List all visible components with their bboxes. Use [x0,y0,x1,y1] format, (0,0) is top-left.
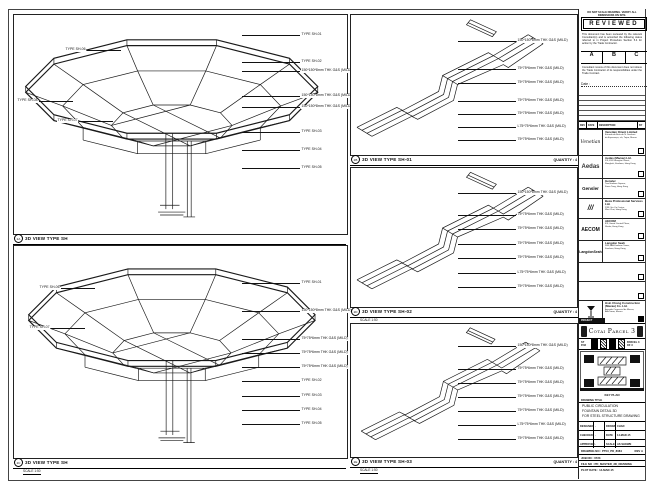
view-title-top-left: 2A 3D VIEW TYPE SH [13,234,346,245]
consultant-address: Mongkok, Kowloon, Hong Kong [605,163,643,166]
leader-label: TYPE SH-05 [301,166,322,170]
revision-row [579,95,645,96]
leader-label: TYPE SH-07 [57,119,78,123]
view-scale-text: SCALE 1:50 [360,468,378,474]
consultant-address: Shatin, Hong Kong [605,226,643,229]
checkbox-icon [638,293,644,299]
leader-label: 150*150*8mm THK G&S (MILD) [517,344,568,348]
revision-table-header: REV DATE DESCRIPTION BY [579,121,645,129]
leader-label: 150*150*8mm THK G&S (MILD) [301,309,352,313]
leader-label: 75*75*6mm THK G&S (MILD) [517,256,564,260]
plot-date-row: PLOT DATE : 14-MAR-15 [579,466,645,472]
revision-row [579,100,645,101]
consultant-name: Beca Professional Services Ltd. [605,200,643,207]
leader-label: 75*75*6mm THK G&S (MILD) [517,138,564,142]
plot-date-value: PLOT DATE : 14-MAR-15 [581,468,614,472]
checkbox-icon [638,191,644,197]
consultant-row-langdon-seah: LangdonSeah Langdon Seah38/F, AIA Kowloo… [579,240,645,262]
stamp-status-table: A B C [581,51,647,64]
leader-label: TYPE SH-04 [301,408,322,412]
stamp-date-line: Date : [581,82,647,87]
view-title-text: 3D VIEW TYPE SH [25,236,68,241]
status-cell-b: B [603,52,625,63]
checkbox-icon [638,171,644,177]
drawing-number-value: PT03_PD_8084 [602,449,622,453]
consultant-address: Kowloon, Hong Kong [605,248,643,251]
leader-label: 150*150*8mm THK G&S (MILD) [517,39,568,43]
leader-label: 75*75*6mm THK G&S (MILD) [301,351,348,355]
wireframe-drawing-top-left [14,15,345,232]
keyplan-strip-label: ST P.03 [581,341,589,347]
signoff-label: DESIGNED [579,422,594,430]
leader-label: 150*150*8mm THK G&S (MILD) [301,69,352,73]
consultant-row-empty-1 [579,262,645,281]
signoff-value: - [594,422,605,430]
project-banner: Cotai Parcel 3 [579,323,645,339]
signoff-label: DRAWN [605,422,616,430]
consultant-row-aecom: AECOM AECOM8/F, Grand Central Plaza,Shat… [579,218,645,240]
file-number-value: FILE NO : PD_MASTER_3D_DRAWING [581,462,632,466]
view-title-mid-1: 2B 3D VIEW TYPE SH-01 QUANTITY : 4 [350,155,578,166]
project-tag-bar: PROJECT [579,318,605,323]
leader-label: 75*75*6mm THK G&S (MILD) [517,409,564,413]
drawing-title-line: FOR STEEL STRUCTURE DRAWING [579,414,645,419]
leader-label: 150*150*8mm THK G&S (MILD) [517,191,568,195]
leader-label: 75*75*6mm THK G&S (MILD) [517,437,564,441]
reviewed-stamp: REVIEWED [581,17,647,31]
drawing-title-label: DRAWING TITLE [579,399,645,403]
view-quantity-text: QUANTITY : 4 [554,158,578,162]
aecom-logo: AECOM [579,219,603,240]
leader-label: 75*75*6mm THK G&S (MILD) [517,67,564,71]
leader-label: L75*75*6mm THK G&S (MILD) [517,271,566,275]
viewport-mid-1 [350,14,578,156]
leader-label: 75*75*6mm THK G&S (MILD) [517,81,564,85]
checkbox-icon [638,148,644,154]
leader-label: TYPE SH-01 [301,33,322,37]
leader-label: TYPE SH-03 [301,130,322,134]
signoff-value: CHAD [616,422,645,430]
consultant-row-aedas: Aedas Aedas (Macau) Ltd.5/F, 618 Shangha… [579,155,645,178]
leader-label: 150*150*8mm THK G&S (MILD) [301,105,352,109]
keyplan-strip: ST P.03 PARCEL 3 OF 3 [579,339,645,350]
view-scale-text: SCALE 1:50 [23,469,41,475]
consultant-row-empty-2 [579,281,645,300]
mini-plan-icon [591,339,598,349]
emblem-icon [581,326,587,337]
status-cell-a: A [581,52,603,63]
leader-label: 75*75*6mm THK G&S (MILD) [301,337,348,341]
keyplan-strip-label-2: PARCEL 3 OF 3 [627,341,643,347]
leader-label: L75*75*6mm THK G&S (MILD) [517,423,566,427]
drawing-sheet-page: TYPE SH-01 TYPE SH-02 150*150*8mm THK G&… [0,0,650,488]
leader-label: 75*75*6mm THK G&S (MILD) [517,227,564,231]
view-title-mid-3: 2E 3D VIEW TYPE SH-03 QUANTITY : 4 [350,457,578,468]
leader-label: 75*75*6mm THK G&S (MILD) [517,242,564,246]
signoff-row: CHECKED - DATE 14-MAR-15 [579,430,645,439]
gensler-logo: Gensler [579,179,603,198]
leader-label: TYPE SH-02 [301,379,322,383]
key-plan-drawing [580,351,644,391]
view-ref-bubble: 2E [351,457,360,466]
signoff-label: DATE [605,431,616,439]
leader-label: 75*75*6mm THK G&S (MILD) [517,99,564,103]
leader-label: TYPE SH-08 [17,99,38,103]
rev-col-header: REV [579,122,587,128]
leader-label: TYPE SH-06 [65,48,86,52]
leader-label: TYPE SH-06 [39,286,60,290]
consultant-row-venetian: Venetian Venetian Orient LimitedEstrada … [579,129,645,155]
leader-label: 75*75*6mm THK G&S (MILD) [517,112,564,116]
sheet-border: TYPE SH-01 TYPE SH-02 150*150*8mm THK G&… [8,9,646,481]
project-name: Cotai Parcel 3 [589,328,636,335]
signoff-value: 14-MAR-15 [616,431,645,439]
view-title-text: 3D VIEW TYPE SH-01 [362,157,412,162]
signoff-value: - [594,431,605,439]
leader-label: TYPE SH-04 [301,148,322,152]
aedas-logo: Aedas [579,156,603,178]
view-title-text: 3D VIEW TYPE SH-02 [362,309,412,314]
revision-row [579,115,645,116]
langdon-seah-logo: LangdonSeah [579,241,603,262]
revision-row [579,110,645,111]
title-block: DO NOT SCALE DRAWING. VERIFY ALL DIMENSI… [578,9,645,479]
signoff-row: DESIGNED - DRAWN CHAD [579,421,645,430]
leader-label: L75*75*6mm THK G&S (MILD) [517,125,566,129]
keyplan-caption: KEY PLAN [579,393,645,397]
rev-col-header: DESCRIPTION [598,122,638,128]
leader-label: TYPE SH-07 [29,326,50,330]
view-ref-bubble: 2C [14,458,23,467]
consultant-row-gensler: Gensler GenslerTwo Harbour Square,Kwun T… [579,178,645,198]
leader-label: 150*150*8mm THK G&S (MILD) [301,94,352,98]
checkbox-icon [638,255,644,261]
emblem-icon [637,326,643,337]
leader-label: 75*75*6mm THK G&S (MILD) [517,367,564,371]
leader-label: 75*75*6mm THK G&S (MILD) [301,365,348,369]
signoff-label: CHECKED [579,431,594,439]
venetian-logo: Venetian [579,130,603,155]
revision-value: REV A [635,449,643,453]
leader-label: 75*75*6mm THK G&S (MILD) [517,213,564,217]
checkbox-checked-icon [638,316,644,322]
consultant-address: Kwun Tong, Hong Kong [605,186,643,189]
contractor-name: Hsin Chong Construction (Macau) Co. Ltd. [605,302,643,309]
view-title-mid-2: 2D 3D VIEW TYPE SH-02 QUANTITY : 4 [350,307,578,318]
status-cell-c: C [626,52,647,63]
rev-col-header: DATE [587,122,598,128]
beca-logo: /// [579,199,603,218]
stamp-body-2: Consultant review of this document does … [579,66,645,75]
view-title-text: 3D VIEW TYPE SH [25,460,68,465]
view-quantity-text: QUANTITY : 4 [554,310,578,314]
viewport-top-left [13,14,348,235]
drawing-number-label: DRAWING NO : [581,449,601,453]
view-ref-bubble: 2B [351,155,360,164]
leader-label: TYPE SH-05 [301,422,322,426]
leader-label: TYPE SH-01 [301,281,322,285]
checkbox-icon [638,211,644,217]
leader-label: 75*75*6mm THK G&S (MILD) [517,285,564,289]
job-number-value: JOB NO : 0723 [581,456,600,460]
leader-label: 75*75*6mm THK G&S (MILD) [517,395,564,399]
view-quantity-text: QUANTITY : 4 [554,460,578,464]
view-title-bottom-left: 2C 3D VIEW TYPE SH [13,458,346,469]
view-ref-bubble: 2D [351,307,360,316]
checkbox-icon [638,274,644,280]
drawing-number-row: DRAWING NO : PT03_PD_8084 REV A [579,446,645,454]
leader-label: TYPE SH-02 [301,60,322,64]
contractor-address: AIA Tower, Macau [605,311,643,314]
rev-col-header: BY [638,122,645,128]
checkbox-icon [638,233,644,239]
view-title-text: 3D VIEW TYPE SH-03 [362,459,412,464]
leader-label: 75*75*6mm THK G&S (MILD) [517,381,564,385]
view-ref-bubble: 2A [14,234,23,243]
leader-label: TYPE SH-03 [301,394,322,398]
consultant-row-beca: /// Beca Professional Services Ltd.23/F,… [579,198,645,218]
consultant-address: da Esperança, s/n, Taipa, Macau [605,137,643,140]
mini-plan-icon [600,339,607,349]
stamp-body-1: This document has been reviewed by the r… [579,33,645,45]
reviewed-stamp-title: REVIEWED [583,19,645,29]
revision-row [579,105,645,106]
mini-plan-icon [609,339,616,349]
mini-plan-icon [618,339,625,349]
date-label: Date : [581,82,590,86]
